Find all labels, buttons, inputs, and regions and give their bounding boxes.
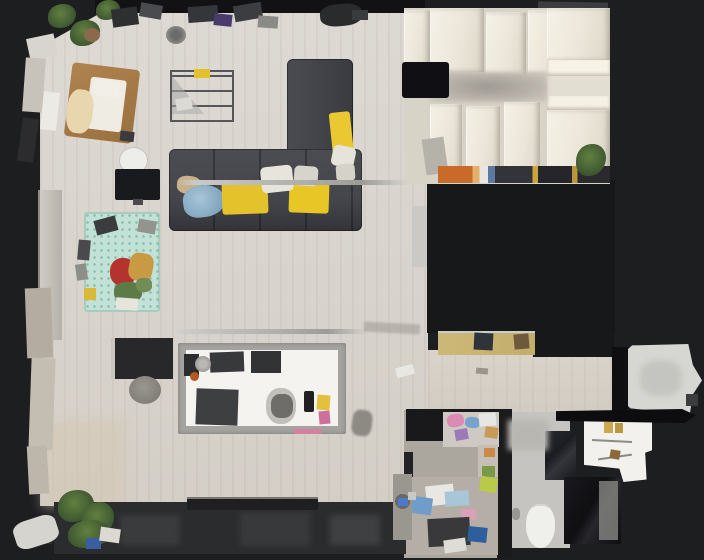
- tv-stand-foot: [133, 199, 143, 205]
- sink-items: [271, 394, 293, 418]
- wall-fragment: [27, 446, 49, 495]
- floor-fragment: [476, 367, 488, 374]
- cabinet-item: [474, 333, 494, 351]
- balcony-color-bit: [408, 492, 416, 500]
- right-balcony-dark-item: [686, 394, 698, 406]
- wall-stub: [612, 347, 628, 411]
- plant-pot: [84, 28, 100, 42]
- white-pillow: [260, 164, 295, 193]
- curtain-rail: [176, 180, 408, 185]
- shower-gray-panel: [599, 481, 618, 540]
- daybed-yellow-item: [84, 288, 96, 300]
- daybed-green-item: [136, 278, 152, 292]
- kitchen-rail: [175, 329, 366, 334]
- closet-shelf: [547, 96, 610, 110]
- vanity-bottle: [604, 422, 613, 433]
- unscanned-notch: [427, 180, 615, 333]
- balcony-patch: [120, 515, 180, 545]
- vanity-bottle: [615, 423, 623, 433]
- wall-tv: [402, 62, 449, 98]
- window-sill: [187, 497, 318, 510]
- tv-screen: [115, 169, 160, 200]
- pink-package: [318, 411, 330, 425]
- closet-shelf-gap: [547, 76, 610, 96]
- stove-mat: [195, 388, 238, 425]
- closet-room: [404, 8, 610, 184]
- cabinet-item: [513, 333, 529, 349]
- daybed-edge-item: [75, 263, 88, 280]
- bathroom-top-wall: [556, 409, 696, 423]
- clutter-item: [467, 526, 487, 543]
- closet-shelf: [547, 60, 610, 76]
- clutter-item: [479, 412, 497, 426]
- kettle: [195, 356, 211, 372]
- unscanned-notch-ext: [533, 330, 614, 357]
- wardrobe-panel: [404, 10, 430, 66]
- daybed-edge-item: [77, 240, 91, 261]
- gray-pillow: [335, 163, 355, 181]
- open-door-panel: [412, 206, 427, 267]
- clutter-item: [484, 448, 495, 457]
- wall-fragment: [25, 288, 53, 359]
- balcony-patch: [240, 512, 310, 546]
- yellow-package: [316, 394, 330, 410]
- balcony-patch: [330, 515, 380, 545]
- bed: [64, 62, 141, 144]
- clutter-item: [445, 490, 470, 507]
- bed-dark-item: [120, 130, 135, 142]
- bed-pillow: [93, 79, 121, 98]
- vanity-item: [609, 449, 620, 460]
- tile-shading: [508, 420, 548, 450]
- toilet-brush: [512, 508, 520, 520]
- rack-yellow-item: [194, 69, 210, 78]
- clutter-dark: [111, 6, 139, 27]
- clutter-item: [454, 428, 469, 441]
- shower-glass-upper: [545, 431, 576, 480]
- wall-fragment: [28, 358, 55, 451]
- pink-strip: [294, 429, 321, 434]
- clutter-gray: [258, 15, 279, 28]
- desk: [111, 338, 173, 379]
- wardrobe-panel: [486, 12, 526, 78]
- wall-fragment-dark: [17, 117, 39, 163]
- metal-pot: [166, 26, 186, 44]
- balcony-color-bit: [398, 498, 408, 506]
- right-balcony-shade: [640, 360, 682, 396]
- stove-mat: [210, 351, 245, 372]
- white-item: [99, 527, 121, 544]
- purple-item: [213, 13, 232, 27]
- wardrobe-panel: [504, 102, 540, 172]
- wardrobe-panel: [547, 8, 610, 60]
- floorplan-canvas[interactable]: [0, 0, 704, 560]
- toilet: [526, 504, 555, 548]
- hallway-floor: [428, 350, 614, 412]
- clutter-item: [484, 426, 498, 439]
- dark-bottle: [304, 391, 314, 412]
- daybed-white-item: [116, 297, 139, 311]
- stove-mat: [251, 351, 281, 373]
- orange-fruit: [190, 372, 199, 381]
- ceiling-lamp-arm: [352, 10, 368, 20]
- wardrobe-panel: [466, 106, 500, 172]
- stool: [129, 376, 161, 404]
- clutter-item: [479, 476, 498, 494]
